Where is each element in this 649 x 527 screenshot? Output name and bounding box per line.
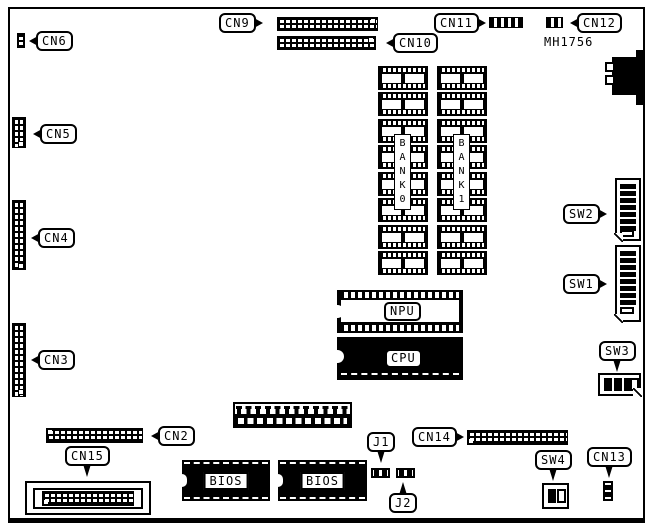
callout-pointer: [549, 468, 557, 481]
sw1-dip-switch: [615, 245, 641, 322]
cn10-pin1-mark: [369, 38, 373, 42]
callout-pointer: [386, 38, 395, 48]
callout-pointer: [31, 355, 40, 365]
cn4-label: CN4: [44, 231, 69, 245]
sw4-label: SW4: [541, 453, 566, 467]
cn2-connector: [46, 428, 143, 443]
callout-cn9: CN9: [219, 13, 256, 33]
callout-pointer: [31, 233, 40, 243]
callout-pointer: [83, 464, 91, 477]
keyboard-connector-body: [612, 57, 637, 95]
callout-pointer: [399, 482, 407, 495]
callout-cn4: CN4: [38, 228, 75, 248]
cn12-label: CN12: [583, 16, 616, 30]
cn3-label: CN3: [44, 353, 69, 367]
cn2-label: CN2: [164, 429, 189, 443]
j1-jumper: [371, 468, 390, 478]
sw4-dip-switch: [542, 483, 569, 509]
callout-j1: J1: [367, 432, 395, 452]
callout-pointer: [455, 432, 464, 442]
bios-chip-1: BIOS: [182, 460, 270, 501]
sw3-dip-switch: [598, 373, 641, 396]
cn15-pin-strip: [42, 491, 134, 506]
sw1-segments: [620, 251, 636, 305]
memory-dip-socket: [378, 225, 428, 249]
callout-pointer: [151, 431, 160, 441]
sw2-label: SW2: [569, 207, 594, 221]
part-number-text: MH1756: [544, 35, 593, 49]
cn10-label: CN10: [399, 36, 432, 50]
cn6-connector: [17, 33, 25, 48]
memory-dip-socket: [378, 66, 428, 90]
bios1-label: BIOS: [204, 472, 249, 490]
callout-cn3: CN3: [38, 350, 75, 370]
cn9-pin1-mark: [371, 19, 375, 23]
sw4-off-segment: [557, 489, 566, 503]
cn10-connector: [277, 36, 376, 50]
power-connector: [233, 402, 352, 428]
cn4-connector: [12, 200, 26, 270]
sw1-open-segment: [620, 307, 634, 314]
cn15-label: CN15: [71, 449, 104, 463]
keyboard-connector-pin: [605, 75, 615, 85]
cn4-pin1-mark: [18, 263, 24, 269]
motherboard-diagram: CN6 CN9 CN10 CN11 CN12 MH1756 CN5 CN4 CN…: [0, 0, 649, 527]
j1-label: J1: [373, 435, 389, 449]
cpu-label: CPU: [385, 349, 422, 368]
sw3-segments: [604, 378, 632, 391]
bios2-notch: [278, 474, 283, 487]
cn11-connector: [489, 17, 523, 28]
callout-pointer: [477, 18, 486, 28]
cn3-connector: [12, 323, 26, 397]
callout-cn14: CN14: [412, 427, 457, 447]
keyboard-connector: [636, 50, 645, 105]
callout-pointer: [29, 36, 38, 46]
sw2-corner-curl: [614, 233, 623, 242]
memory-dip-socket: [378, 92, 428, 116]
memory-dip-socket: [437, 92, 487, 116]
callout-cn15: CN15: [65, 446, 110, 466]
bios-chip-2: BIOS: [278, 460, 367, 501]
callout-cn5: CN5: [40, 124, 77, 144]
callout-sw3: SW3: [599, 341, 636, 361]
callout-sw4: SW4: [535, 450, 572, 470]
cn14-pin1-mark: [469, 439, 473, 443]
sw2-segments: [620, 184, 636, 231]
callout-pointer: [254, 18, 263, 28]
sw3-corner-curl: [633, 388, 642, 397]
callout-pointer: [598, 279, 607, 289]
cn14-label: CN14: [418, 430, 451, 444]
callout-pointer: [613, 359, 621, 372]
callout-cn11: CN11: [434, 13, 479, 33]
cn2-pin1-mark: [48, 430, 52, 434]
sw4-on-segment: [548, 489, 556, 503]
memory-dip-socket: [437, 225, 487, 249]
cn9-connector: [277, 17, 378, 31]
callout-pointer: [570, 18, 579, 28]
callout-cn12: CN12: [577, 13, 622, 33]
memory-dip-socket: [378, 251, 428, 275]
cn12-connector: [546, 17, 563, 28]
sw3-label: SW3: [605, 344, 630, 358]
sw2-dip-switch: [615, 178, 641, 241]
sw1-label: SW1: [569, 277, 594, 291]
cn15-pin1-mark: [44, 500, 48, 504]
callout-cn10: CN10: [393, 33, 438, 53]
cn5-label: CN5: [46, 127, 71, 141]
bios1-notch: [182, 474, 187, 487]
cn14-connector: [467, 430, 568, 445]
bios2-label: BIOS: [300, 472, 345, 490]
keyboard-connector-pin: [605, 62, 615, 72]
callout-cn13: CN13: [587, 447, 632, 467]
callout-pointer: [33, 129, 42, 139]
callout-j2: J2: [389, 493, 417, 513]
cn9-label: CN9: [225, 16, 250, 30]
callout-pointer: [605, 465, 613, 478]
memory-dip-socket: [437, 251, 487, 275]
sw1-corner-curl: [614, 314, 623, 323]
j2-jumper: [396, 468, 415, 478]
j2-label: J2: [395, 496, 411, 510]
bank0-label: BANK0: [394, 134, 411, 210]
bank1-label: BANK1: [453, 134, 470, 210]
cn3-pin1-mark: [18, 389, 24, 395]
callout-sw2: SW2: [563, 204, 600, 224]
callout-pointer: [377, 450, 385, 463]
cn5-pin1-mark: [18, 141, 24, 147]
memory-dip-socket: [437, 66, 487, 90]
npu-label: NPU: [384, 302, 421, 321]
cn13-label: CN13: [593, 450, 626, 464]
callout-sw1: SW1: [563, 274, 600, 294]
callout-cn2: CN2: [158, 426, 195, 446]
callout-pointer: [598, 209, 607, 219]
cn11-label: CN11: [440, 16, 473, 30]
callout-cn6: CN6: [36, 31, 73, 51]
cn13-connector: [603, 481, 613, 501]
cn6-label: CN6: [42, 34, 67, 48]
